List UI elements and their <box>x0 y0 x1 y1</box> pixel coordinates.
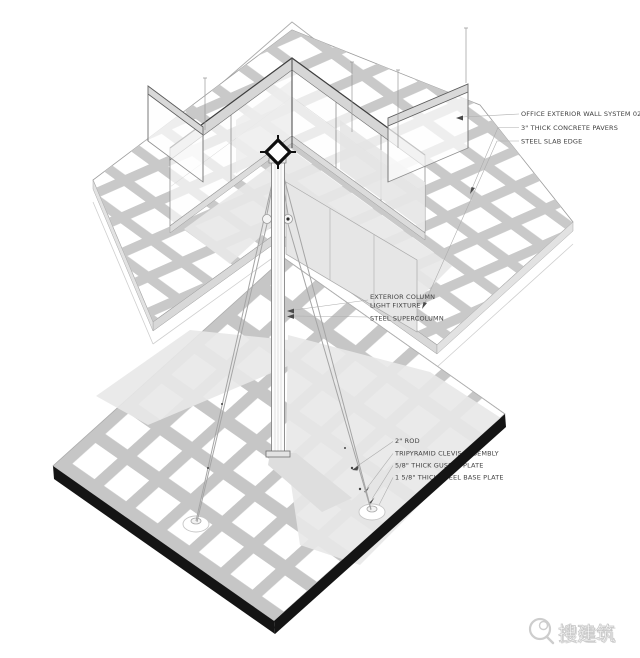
label-clevis-assembly: TRIPYRAMID CLEVIS ASSEMBLY <box>394 450 499 458</box>
label-exterior-column: EXTERIOR COLUMN <box>370 293 435 301</box>
label-rod: 2" ROD <box>395 437 420 445</box>
watermark-text: 搜建筑 <box>558 623 615 645</box>
clevis-left <box>263 215 272 224</box>
axonometric-detail-page: 2" ROD TRIPYRAMID CLEVIS ASSEMBLY 5/8" T… <box>0 0 640 658</box>
anchor-right <box>359 504 385 520</box>
label-concrete-pavers: 3" THICK CONCRETE PAVERS <box>521 124 618 132</box>
steel-base-plate <box>266 451 290 457</box>
label-light-fixture: LIGHT FIXTURE <box>370 302 421 310</box>
axonometric-detail-drawing: 2" ROD TRIPYRAMID CLEVIS ASSEMBLY 5/8" T… <box>0 0 640 658</box>
label-slab-edge: STEEL SLAB EDGE <box>521 138 582 146</box>
label-wall-system: OFFICE EXTERIOR WALL SYSTEM 02 <box>521 110 640 118</box>
anchor-left <box>183 516 209 532</box>
label-supercolumn: STEEL SUPERCOLUMN <box>370 315 444 323</box>
label-gusset-plate: 5/8" THICK GUSSET PLATE <box>395 462 484 470</box>
